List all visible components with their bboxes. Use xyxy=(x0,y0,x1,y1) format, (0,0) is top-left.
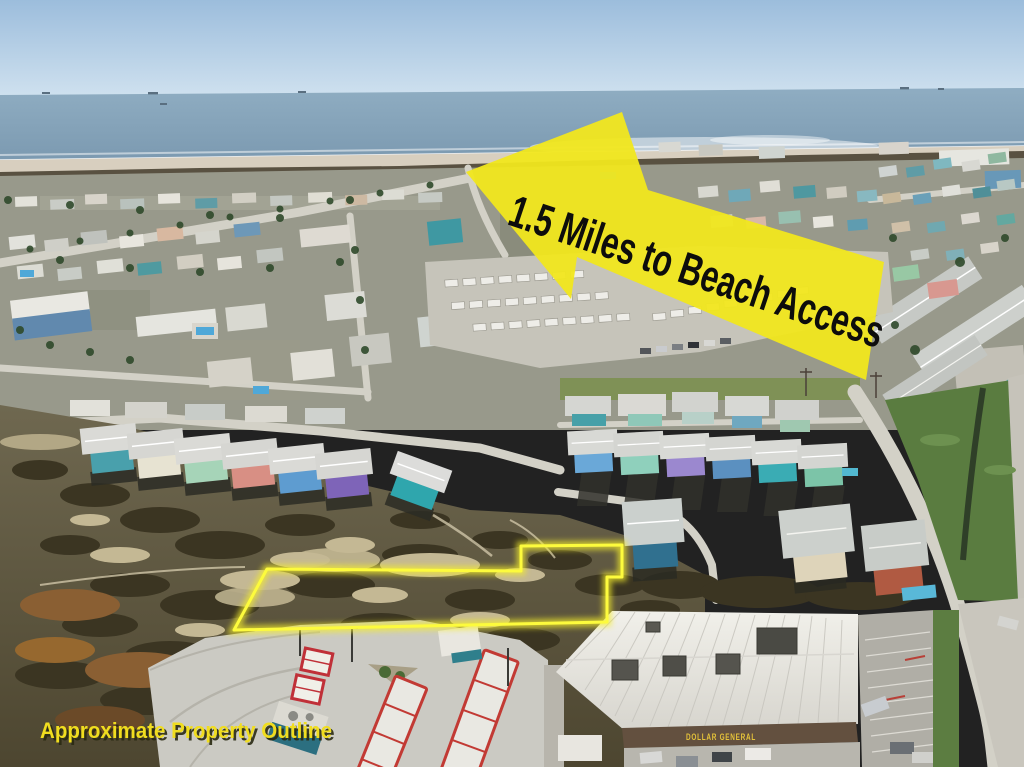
store-sign: DOLLAR GENERAL xyxy=(686,732,756,742)
store-parking-lot xyxy=(858,610,938,767)
grass-strip xyxy=(933,610,959,767)
property-caption-text: Approximate Property Outline xyxy=(40,718,332,743)
cottage-row-right xyxy=(567,429,858,520)
sky xyxy=(0,0,1024,97)
aerial-photo-canvas: DOLLAR GENERAL xyxy=(0,0,1024,767)
teal-building xyxy=(427,218,463,245)
property-caption: Approximate Property Outline Approximate… xyxy=(40,718,335,746)
aerial-photo: DOLLAR GENERAL xyxy=(0,0,1024,767)
loading-canopy xyxy=(558,735,602,761)
